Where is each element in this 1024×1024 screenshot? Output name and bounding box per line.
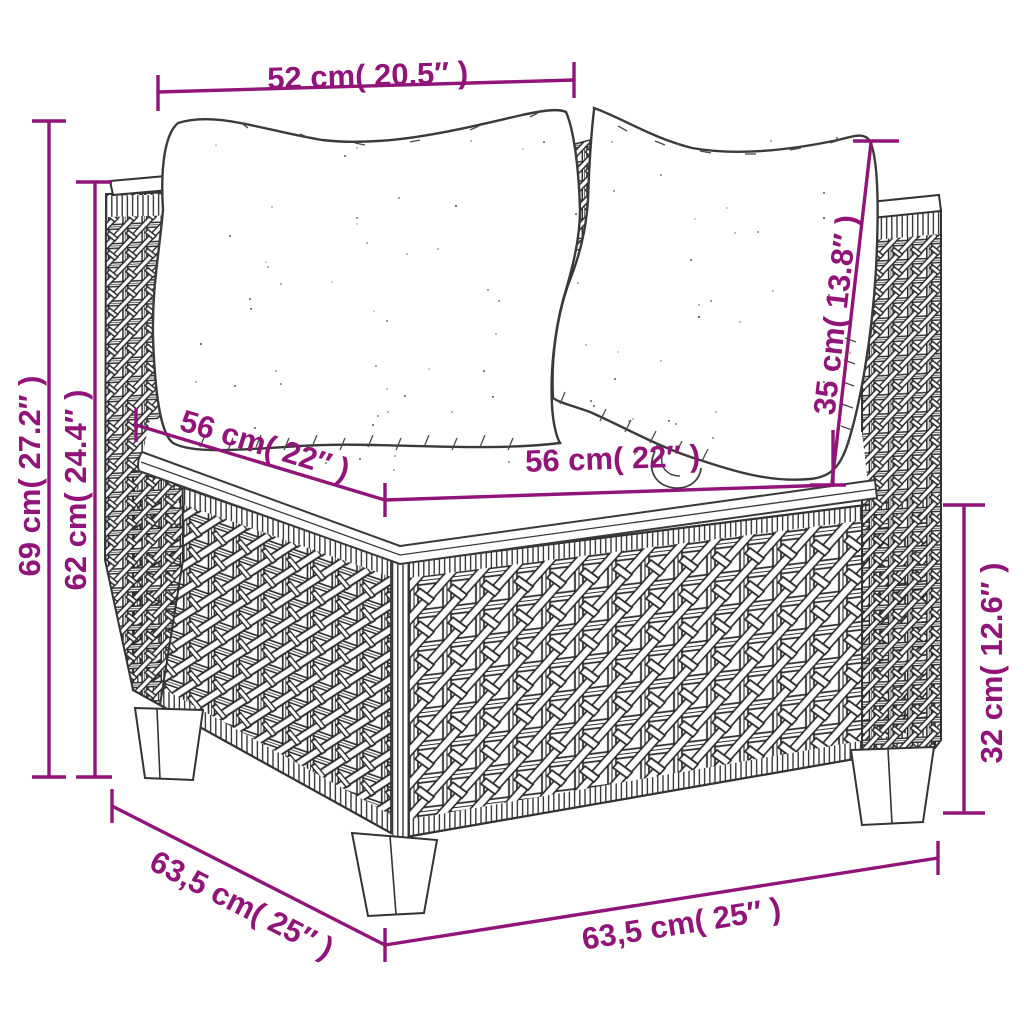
svg-text:69 cm( 27.2″ ): 69 cm( 27.2″ ) <box>12 376 47 577</box>
svg-text:32 cm( 12.6″ ): 32 cm( 12.6″ ) <box>974 563 1009 764</box>
svg-text:56 cm( 22″ ): 56 cm( 22″ ) <box>525 438 701 479</box>
svg-text:62 cm( 24.4″ ): 62 cm( 24.4″ ) <box>58 390 93 591</box>
svg-text:52 cm( 20.5″ ): 52 cm( 20.5″ ) <box>267 55 469 96</box>
